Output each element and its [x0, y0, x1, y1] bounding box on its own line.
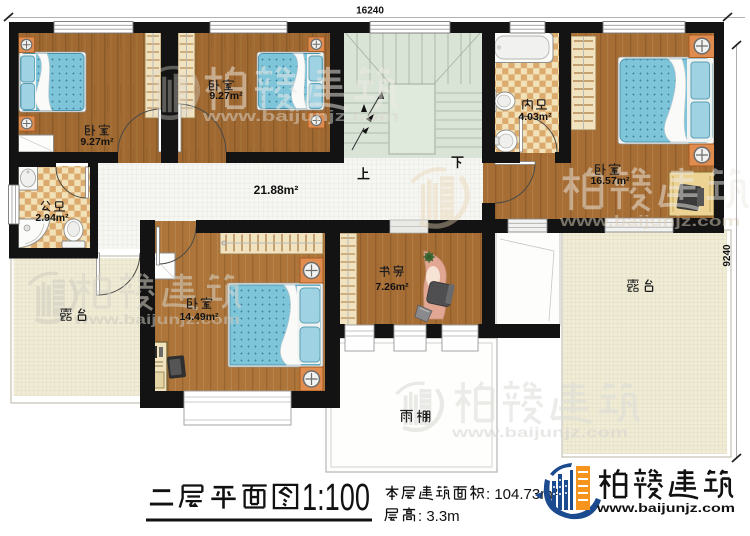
svg-text:14.49m²: 14.49m² [179, 311, 219, 323]
svg-text:www.baijunjz.com: www.baijunjz.com [596, 501, 735, 515]
svg-text:16.57m²: 16.57m² [590, 175, 630, 187]
svg-text:1:100: 1:100 [302, 477, 370, 519]
svg-text:2.94m²: 2.94m² [35, 212, 69, 224]
svg-text:www.baijunjz.com: www.baijunjz.com [559, 214, 740, 230]
svg-text:9.27m²: 9.27m² [80, 136, 114, 148]
svg-text:9.27m²: 9.27m² [209, 90, 243, 102]
svg-text:9240: 9240 [722, 244, 733, 267]
svg-text:www.baijunjz.com: www.baijunjz.com [450, 425, 628, 440]
svg-text:4.03m²: 4.03m² [518, 111, 552, 123]
svg-text:21.88m²: 21.88m² [254, 183, 299, 197]
svg-text:16240: 16240 [356, 6, 384, 17]
svg-text:7.26m²: 7.26m² [375, 281, 409, 293]
svg-text:www.baijunjz.com: www.baijunjz.com [201, 108, 399, 125]
svg-text:: 3.3m: : 3.3m [418, 508, 460, 525]
